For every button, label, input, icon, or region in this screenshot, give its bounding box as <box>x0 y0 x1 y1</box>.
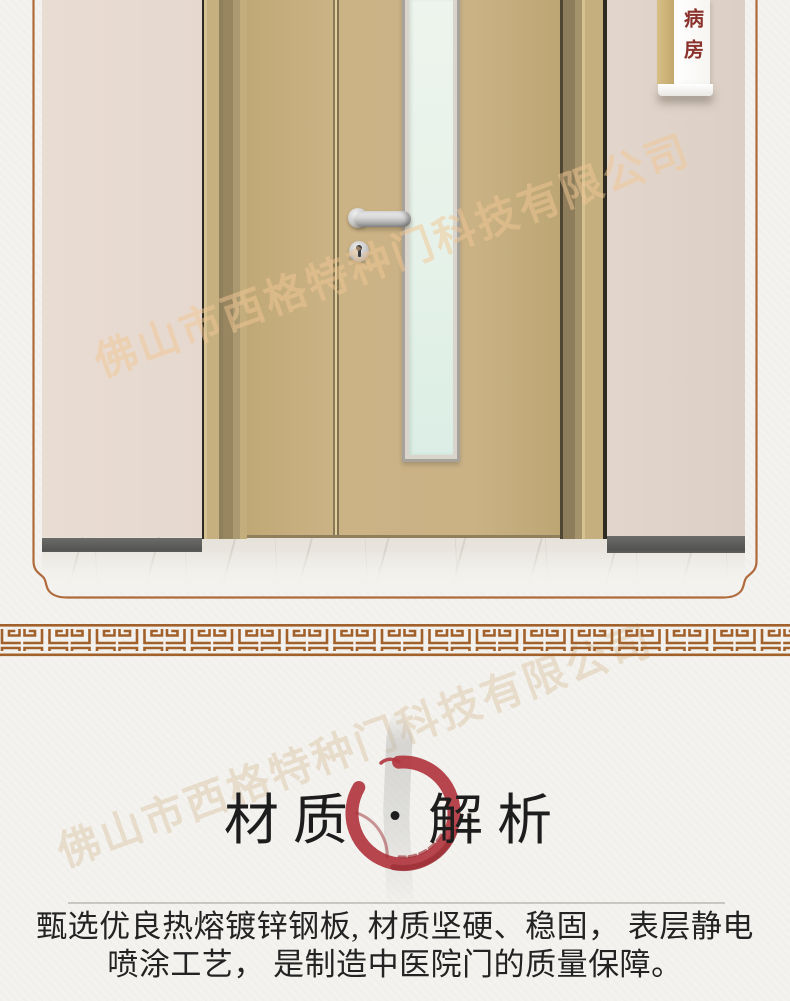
body-copy-line2: 喷涂工艺， 是制造中医院门的质量保障。 <box>15 946 775 984</box>
section-title-left: 材质 <box>224 775 362 855</box>
meander-bottom-rule <box>0 654 790 657</box>
frame-border-path <box>34 0 757 598</box>
promo-page: 病房 佛山市西格特种门科技有限公司 佛山市西格特种门科技有限公司 材质 <box>0 0 790 1001</box>
body-copy-line1: 甄选优良热熔镀锌钢板, 材质坚硬、稳固， 表层静电 <box>15 908 775 946</box>
enso-tail <box>381 759 399 763</box>
meander-pattern <box>0 629 790 651</box>
meander-border <box>0 624 790 658</box>
section-title-right: 解析 <box>428 775 566 855</box>
body-copy: 甄选优良热熔镀锌钢板, 材质坚硬、稳固， 表层静电 喷涂工艺， 是制造中医院门的… <box>15 908 775 984</box>
section-title: 材质 · 解析 <box>0 782 790 848</box>
meander-top-rule <box>0 624 790 627</box>
title-separator-dot: · <box>386 784 404 847</box>
ornamental-frame-border <box>0 0 790 620</box>
